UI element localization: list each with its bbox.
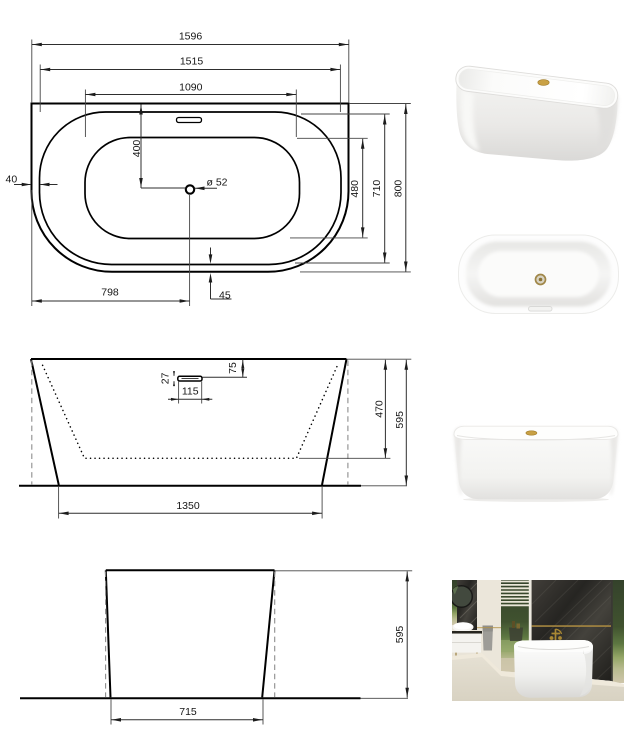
svg-text:1596: 1596 — [179, 31, 203, 43]
svg-text:45: 45 — [219, 290, 231, 302]
svg-text:1515: 1515 — [180, 56, 204, 68]
svg-text:115: 115 — [182, 385, 199, 397]
svg-text:400: 400 — [131, 140, 143, 158]
svg-text:40: 40 — [6, 174, 18, 186]
svg-text:1090: 1090 — [179, 82, 203, 94]
svg-text:595: 595 — [394, 626, 406, 644]
svg-text:ø 52: ø 52 — [207, 177, 228, 189]
svg-text:595: 595 — [394, 411, 406, 429]
svg-text:75: 75 — [227, 362, 239, 374]
svg-text:480: 480 — [349, 180, 361, 198]
svg-text:800: 800 — [393, 180, 405, 198]
svg-text:715: 715 — [179, 706, 197, 718]
svg-text:710: 710 — [371, 180, 383, 198]
svg-text:27: 27 — [159, 372, 171, 384]
svg-text:470: 470 — [374, 400, 386, 418]
svg-text:1350: 1350 — [176, 500, 200, 512]
svg-text:798: 798 — [101, 287, 119, 299]
